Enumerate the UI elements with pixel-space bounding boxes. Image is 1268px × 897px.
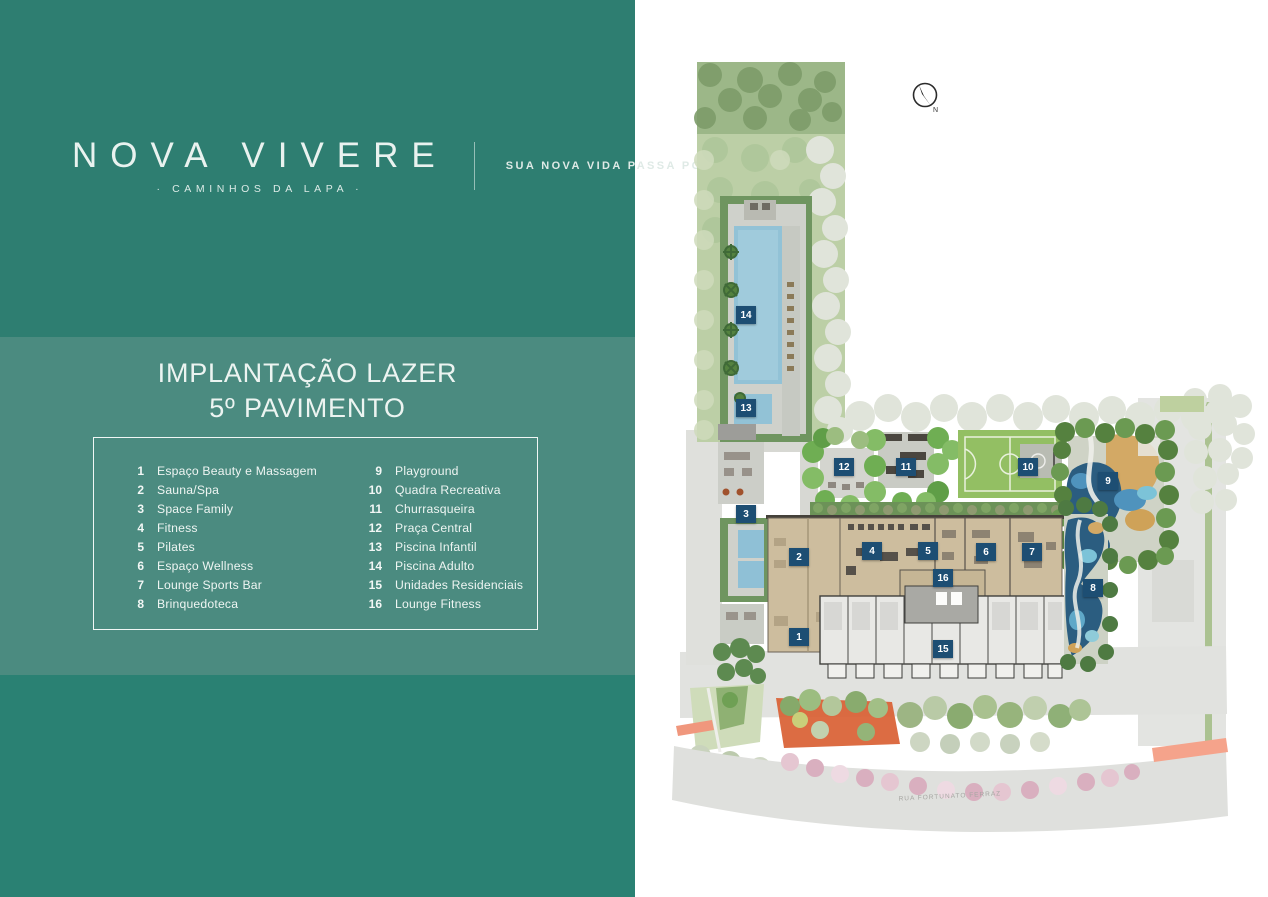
site-plan: RUA FORTUNATO FERRAZ N 12345678910111213… (660, 0, 1268, 897)
legend-item-number: 2 (126, 483, 144, 497)
plan-marker-14[interactable]: 14 (736, 306, 756, 324)
legend-item-label: Churrasqueira (395, 502, 475, 516)
legend-item-label: Playground (395, 464, 459, 478)
page-title-line2: 5º PAVIMENTO (0, 391, 615, 426)
legend-item-number: 11 (364, 502, 382, 516)
page-title: IMPLANTAÇÃO LAZER 5º PAVIMENTO (0, 356, 615, 426)
legend-item-14: 14Piscina Adulto (364, 559, 523, 578)
plan-marker-13[interactable]: 13 (736, 399, 756, 417)
legend-item-label: Space Family (157, 502, 233, 516)
left-panel: NOVA VIVERE · CAMINHOS DA LAPA · SUA NOV… (0, 0, 635, 897)
legend-item-label: Piscina Infantil (395, 540, 477, 554)
plan-marker-10[interactable]: 10 (1018, 458, 1038, 476)
plan-marker-8[interactable]: 8 (1083, 579, 1103, 597)
legend-item-number: 7 (126, 578, 144, 592)
legend-item-label: Praça Central (395, 521, 472, 535)
adult-pool-area (718, 196, 812, 442)
brand-block: NOVA VIVERE · CAMINHOS DA LAPA · SUA NOV… (72, 136, 755, 195)
brand-name: NOVA VIVERE (72, 136, 448, 176)
legend-item-1: 1Espaço Beauty e Massagem (126, 464, 317, 483)
plan-marker-3[interactable]: 3 (736, 505, 756, 523)
compass-north-label: N (933, 107, 938, 114)
legend-item-number: 9 (364, 464, 382, 478)
legend-item-number: 8 (126, 597, 144, 611)
legend-column-right: 9Playground10Quadra Recreativa11Churrasq… (364, 464, 523, 616)
legend-item-number: 3 (126, 502, 144, 516)
legend-item-3: 3Space Family (126, 502, 317, 521)
legend-item-8: 8Brinquedoteca (126, 597, 317, 616)
legend-item-15: 15Unidades Residenciais (364, 578, 523, 597)
plan-marker-9[interactable]: 9 (1098, 472, 1118, 490)
legend-item-label: Espaço Wellness (157, 559, 253, 573)
legend-item-10: 10Quadra Recreativa (364, 483, 523, 502)
panel-band-bottom (0, 675, 635, 897)
legend-item-label: Sauna/Spa (157, 483, 219, 497)
legend-item-number: 14 (364, 559, 382, 573)
legend-item-label: Lounge Sports Bar (157, 578, 262, 592)
family-terrace-area (713, 442, 770, 684)
legend-box: 1Espaço Beauty e Massagem2Sauna/Spa3Spac… (93, 437, 538, 630)
legend-item-13: 13Piscina Infantil (364, 540, 523, 559)
legend-item-number: 5 (126, 540, 144, 554)
legend-item-number: 12 (364, 521, 382, 535)
site-plan-drawing: RUA FORTUNATO FERRAZ N (660, 0, 1268, 897)
brochure-page: { "brand": { "name": "NOVA VIVERE", "sub… (0, 0, 1268, 897)
plan-marker-5[interactable]: 5 (918, 542, 938, 560)
plan-marker-16[interactable]: 16 (933, 569, 953, 587)
legend-item-16: 16Lounge Fitness (364, 597, 523, 616)
legend-item-number: 4 (126, 521, 144, 535)
plan-marker-6[interactable]: 6 (976, 543, 996, 561)
sports-court (958, 430, 1062, 498)
legend-item-number: 13 (364, 540, 382, 554)
legend-item-number: 1 (126, 464, 144, 478)
legend-column-left: 1Espaço Beauty e Massagem2Sauna/Spa3Spac… (126, 464, 317, 616)
service-structure (718, 424, 756, 440)
legend-item-label: Brinquedoteca (157, 597, 238, 611)
legend-item-label: Unidades Residenciais (395, 578, 523, 592)
plan-marker-11[interactable]: 11 (896, 458, 916, 476)
plan-marker-2[interactable]: 2 (789, 548, 809, 566)
legend-item-12: 12Praça Central (364, 521, 523, 540)
legend-item-number: 15 (364, 578, 382, 592)
plan-marker-7[interactable]: 7 (1022, 543, 1042, 561)
brand-divider (474, 142, 475, 190)
legend-item-label: Pilates (157, 540, 195, 554)
legend-item-6: 6Espaço Wellness (126, 559, 317, 578)
brand-subtitle: · CAMINHOS DA LAPA · (72, 183, 448, 195)
legend-item-7: 7Lounge Sports Bar (126, 578, 317, 597)
balconies (828, 664, 1062, 678)
page-title-line1: IMPLANTAÇÃO LAZER (0, 356, 615, 391)
legend-item-4: 4Fitness (126, 521, 317, 540)
legend-item-label: Quadra Recreativa (395, 483, 501, 497)
legend-item-11: 11Churrasqueira (364, 502, 523, 521)
plan-marker-4[interactable]: 4 (862, 542, 882, 560)
legend-item-label: Espaço Beauty e Massagem (157, 464, 317, 478)
plan-marker-1[interactable]: 1 (789, 628, 809, 646)
legend-item-2: 2Sauna/Spa (126, 483, 317, 502)
compass-icon: N (914, 84, 939, 115)
legend-item-number: 16 (364, 597, 382, 611)
legend-item-9: 9Playground (364, 464, 523, 483)
legend-item-5: 5Pilates (126, 540, 317, 559)
plan-marker-15[interactable]: 15 (933, 640, 953, 658)
right-green-patch (1160, 396, 1204, 412)
legend-item-label: Fitness (157, 521, 198, 535)
legend-item-label: Piscina Adulto (395, 559, 474, 573)
plan-marker-12[interactable]: 12 (834, 458, 854, 476)
legend-item-label: Lounge Fitness (395, 597, 481, 611)
hedge-band (810, 502, 1066, 515)
courtyard (802, 427, 962, 515)
legend-item-number: 10 (364, 483, 382, 497)
legend-item-number: 6 (126, 559, 144, 573)
